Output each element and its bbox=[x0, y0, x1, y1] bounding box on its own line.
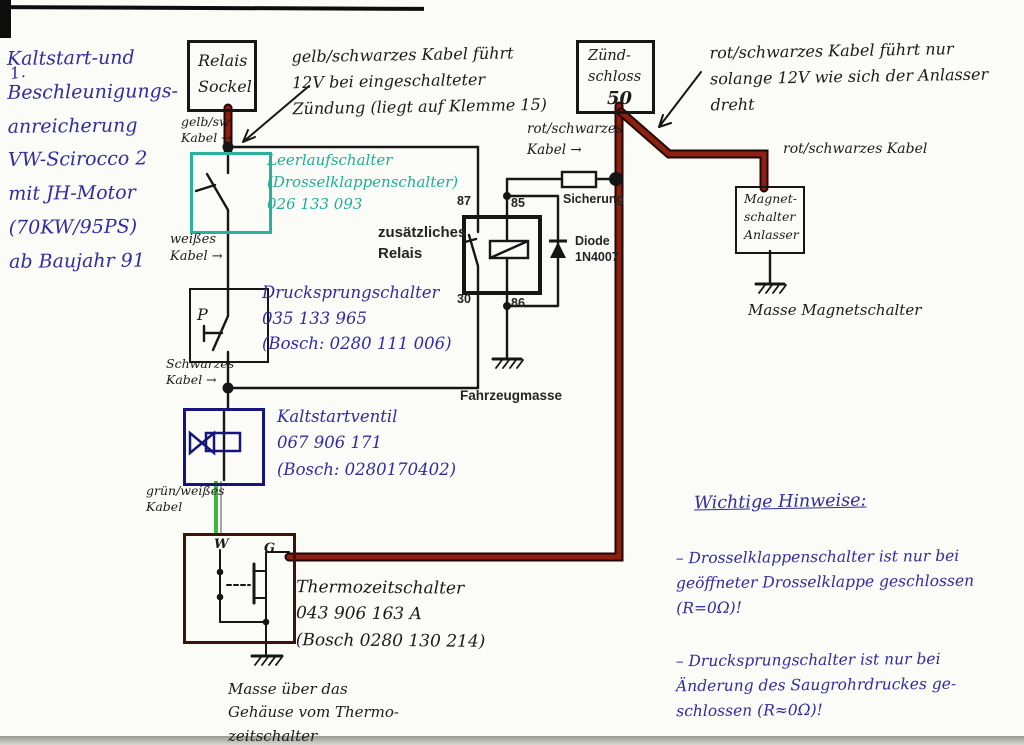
label-rot-schwarzes-kabel-fuse: rot/schwarzes Kabel → bbox=[527, 119, 623, 161]
hints-heading: Wichtige Hinweise: bbox=[694, 488, 867, 516]
thermo-terminal-g: G bbox=[264, 540, 275, 558]
relais-sockel-label: Relais Sockel bbox=[198, 48, 252, 99]
wire-rot-schwarz-anlasser bbox=[621, 112, 764, 188]
diode-label: Diode 1N4007 bbox=[575, 233, 619, 266]
kaltstartventil-note: Kaltstartventil 067 906 171 (Bosch: 0280… bbox=[277, 404, 456, 483]
label-gelb-sw-kabel: gelb/sw Kabel → bbox=[181, 114, 232, 145]
relay-box bbox=[462, 215, 542, 295]
annotation-masse-thermo: Masse über das Gehäuse vom Thermo- zeits… bbox=[228, 678, 399, 745]
thermo-terminal-w: W bbox=[214, 536, 229, 554]
relay-terminal-87: 87 bbox=[457, 194, 471, 208]
relay-label: zusätzliches Relais bbox=[378, 222, 466, 264]
annotation-masse-magnetschalter: Masse Magnetschalter bbox=[748, 300, 921, 321]
fuse-label: Sicherung bbox=[563, 192, 624, 206]
ground-magnetschalter-icon bbox=[756, 251, 786, 293]
hint-item-2: – Drucksprungschalter ist nur bei Änderu… bbox=[676, 647, 957, 724]
label-gruen-weisses-kabel: grün/weißes Kabel bbox=[146, 483, 225, 516]
fuse-icon bbox=[562, 172, 596, 187]
thermozeitschalter-note: Thermozeitschalter 043 906 163 A (Bosch … bbox=[296, 574, 486, 655]
label-weisses-kabel: weißes Kabel → bbox=[170, 232, 223, 266]
annotation-gelb-kabel: gelb/schwarzes Kabel führt 12V bei einge… bbox=[291, 40, 547, 122]
label-rot-schwarzes-kabel-right: rot/schwarzes Kabel bbox=[783, 140, 927, 160]
diode-icon bbox=[549, 241, 567, 258]
thermozeitschalter-box: W G bbox=[183, 533, 296, 644]
leerlaufschalter-box bbox=[190, 152, 272, 234]
drucksprungschalter-box: P bbox=[189, 288, 269, 363]
title-side-note: Kaltstart-und Beschleunigungs- anreicher… bbox=[7, 41, 180, 279]
hint-item-1: – Drosselklappenschalter ist nur bei geö… bbox=[676, 544, 975, 621]
relay-terminal-85: 85 bbox=[511, 196, 525, 210]
ground-thermo-icon bbox=[252, 656, 282, 665]
zuendschloss-terminal-50: 50 bbox=[607, 86, 632, 111]
zuendschloss-label: Zünd- schloss bbox=[588, 46, 641, 88]
fahrzeugmasse-label: Fahrzeugmasse bbox=[460, 388, 562, 403]
relay-terminal-86: 86 bbox=[511, 296, 525, 310]
arrow-to-red-wire bbox=[659, 72, 701, 127]
ground-fahrzeugmasse-icon bbox=[493, 359, 523, 368]
magnetschalter-label: Magnet- schalter Anlasser bbox=[744, 190, 799, 244]
drucksprungschalter-note: Drucksprungschalter 035 133 965 (Bosch: … bbox=[262, 280, 452, 357]
label-schwarzes-kabel: Schwarzes Kabel → bbox=[166, 356, 234, 387]
relais-sockel-box: Relais Sockel bbox=[187, 40, 257, 112]
scanned-wiring-diagram: Relais Sockel Zünd- schloss 50 P W G Mag… bbox=[0, 0, 1024, 745]
zuendschloss-box: Zünd- schloss 50 bbox=[576, 40, 655, 114]
relay-terminal-30: 30 bbox=[457, 292, 471, 306]
kaltstartventil-box bbox=[183, 408, 265, 486]
leerlaufschalter-note: Leerlaufschalter (Drosselklappenschalter… bbox=[267, 150, 458, 215]
drucksprung-symbol-p: P bbox=[197, 304, 208, 326]
annotation-rot-kabel: rot/schwarzes Kabel führt nur solange 12… bbox=[709, 36, 988, 119]
magnetschalter-box: Magnet- schalter Anlasser bbox=[735, 186, 805, 254]
